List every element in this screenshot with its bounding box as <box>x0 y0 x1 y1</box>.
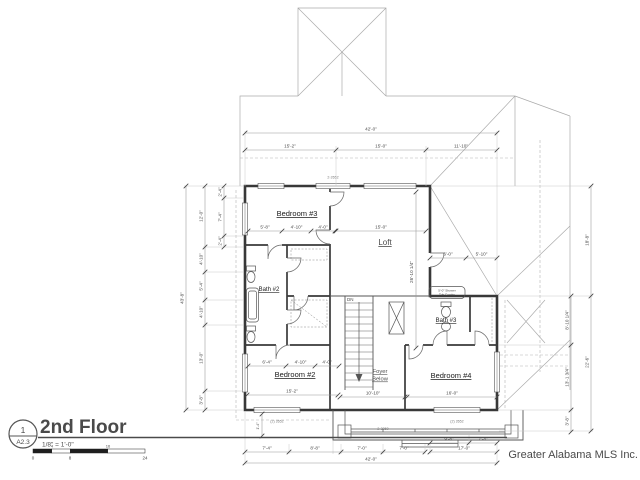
stair-arrow <box>356 374 363 382</box>
dim-top-2: 15'-0" <box>375 144 387 149</box>
dim-left-sub-1: 2'-4" <box>218 187 223 197</box>
window-label-porch: 2-3050 <box>377 427 388 431</box>
scale-label-0: 0 <box>32 456 35 461</box>
dim-right-sub-2: 13'-1 3/4" <box>565 367 570 387</box>
room-label-bath3: Bath #3 <box>436 318 457 324</box>
dim-left-5: 13'-0" <box>199 352 204 364</box>
room-label-foyer-1: Foyer <box>373 369 388 375</box>
dim-bottom-overall: 42'-0" <box>365 457 377 462</box>
dim-bottom-2: 8'-8" <box>310 446 320 451</box>
room-label-bath2: Bath #2 <box>259 287 280 293</box>
toilet-icon <box>247 332 255 343</box>
floor-plan-drawing: DN 5'-0" Shower Tub Combo Bedroom #3 Lof… <box>0 0 640 480</box>
dim-left-sub-2: 7'-4" <box>218 212 223 222</box>
window-label-top: 2-2652 <box>327 176 338 180</box>
dim-bedroom2-3: 4'-0" <box>322 360 332 365</box>
room-label-bedroom2: Bedroom #2 <box>275 370 316 379</box>
toilet-icon <box>442 307 451 318</box>
dim-bedroom3-2: 4'-10" <box>291 225 303 230</box>
dim-right-sub-3: 3'-8" <box>565 416 570 426</box>
detail-number: 1 <box>21 425 26 435</box>
drawing-title: 2nd Floor <box>40 417 127 438</box>
room-label-bedroom3: Bedroom #3 <box>277 209 318 218</box>
room-label-bedroom4: Bedroom #4 <box>431 371 472 380</box>
dim-porch-offset: 1'-4" <box>256 422 260 430</box>
scale-label-16: 16 <box>106 444 111 449</box>
dim-top-1: 15'-2" <box>284 144 296 149</box>
porch-below <box>333 410 523 447</box>
dim-bath3-1: 6'-0" <box>443 252 453 257</box>
room-label-foyer-2: Below <box>372 377 389 383</box>
dim-left-overall: 43'-8" <box>180 292 185 304</box>
dim-bedroom2-width: 15'-2" <box>286 389 298 394</box>
dim-bedroom3-3: 4'-0" <box>318 225 328 230</box>
dimensions-right: 18'-8" 22'-6" 8'-10 1/4" 13'-1 3/4" 3'-8… <box>432 184 593 435</box>
floor-plan-sheet: DN 5'-0" Shower Tub Combo Bedroom #3 Lof… <box>0 0 640 480</box>
dim-top-overall: 42'-0" <box>365 127 377 132</box>
credit-text: Greater Alabama MLS Inc. <box>508 449 638 461</box>
dim-bedroom2-1: 6'-4" <box>262 360 272 365</box>
dim-bottom-3: 7'-0" <box>357 446 367 451</box>
tub-note-line2: Tub Combo <box>439 292 455 296</box>
dim-left-3: 5'-4" <box>199 281 204 291</box>
dim-left-4: 4'-10" <box>199 306 204 318</box>
dim-right-1: 18'-8" <box>585 234 590 246</box>
dim-loft-width: 15'-0" <box>375 225 387 230</box>
dim-bedroom2-2: 4'-10" <box>295 360 307 365</box>
window-label-bottom-left: (2) 2652 <box>270 420 283 424</box>
dim-right-sub-1: 8'-10 1/4" <box>565 310 570 330</box>
dim-left-1: 12'-0" <box>199 210 204 222</box>
dim-top-3: 11'-10" <box>454 144 468 149</box>
dimensions-left: 43'-8" 12'-0" 4'-10" 5'-4" 4'-10" 13'-0"… <box>180 184 244 413</box>
dim-bottom-1: 7'-4" <box>262 446 272 451</box>
dim-bedroom3-1: 5'-8" <box>260 225 270 230</box>
toilet-icon <box>247 272 255 283</box>
dim-bedroom4-width: 16'-0" <box>446 391 458 396</box>
dim-loft-height: 26'-10 1/4" <box>409 261 414 283</box>
drawing-scale: 1/8" = 1'-0" <box>42 442 74 449</box>
window-label-bottom-right: (2) 2652 <box>450 420 463 424</box>
dim-left-6: 3'-8" <box>199 395 204 405</box>
dim-left-sub-3: 2'-4" <box>218 236 223 246</box>
dim-bottom-4: 7'-0" <box>399 446 409 451</box>
scale-label-24: 24 <box>142 456 148 461</box>
stair-direction-label: DN <box>347 297 354 302</box>
dim-right-2: 22'-6" <box>585 356 590 368</box>
dim-left-2: 4'-10" <box>199 253 204 265</box>
dimensions-rooms: 5'-8" 4'-10" 4'-0" 15'-0" 26'-10 1/4" 6'… <box>245 190 500 400</box>
scale-label-8: 8 <box>69 456 72 461</box>
room-label-loft: Loft <box>378 238 392 247</box>
sheet-number: A2.3 <box>16 439 30 446</box>
dim-bath3-2: 5'-10" <box>476 252 488 257</box>
dim-bottom-sub: 17'-0" <box>458 446 470 451</box>
dim-foyer-width: 10'-10" <box>366 391 381 396</box>
